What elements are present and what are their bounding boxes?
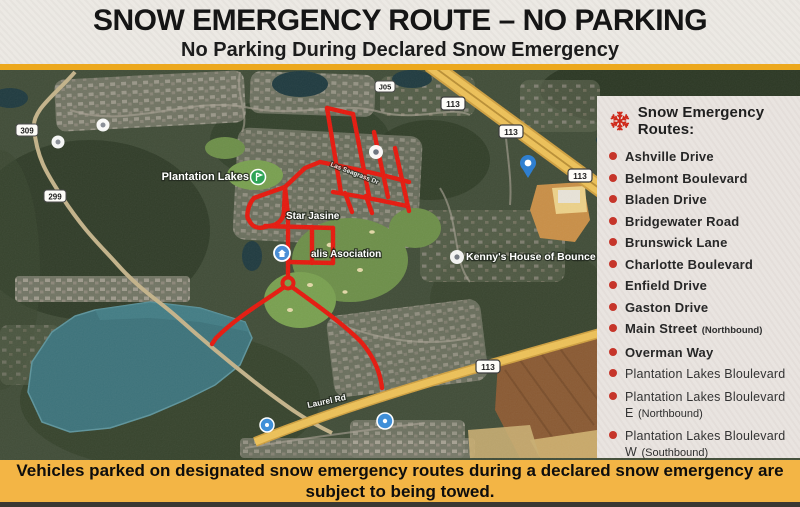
route-shield-j05: J05 — [375, 81, 395, 92]
route-name: Charlotte Boulevard — [625, 257, 753, 272]
route-list-item: Bridgewater Road — [609, 214, 794, 229]
bullet-icon — [609, 174, 617, 182]
snowflake-icon — [609, 108, 631, 134]
bullet-icon — [609, 392, 617, 400]
bullet-icon — [609, 195, 617, 203]
page-subtitle: No Parking During Declared Snow Emergenc… — [0, 39, 800, 62]
bottom-border — [0, 502, 800, 507]
svg-text:J05: J05 — [379, 83, 392, 92]
tow-warning-text: Vehicles parked on designated snow emerg… — [7, 460, 793, 502]
route-shield-309: 309 — [16, 124, 38, 136]
route-name: Belmont Boulevard — [625, 171, 748, 186]
route-name: Main Street (Northbound) — [625, 321, 762, 338]
route-list-item: Main Street (Northbound) — [609, 321, 794, 338]
route-list-item: Bladen Drive — [609, 192, 794, 207]
route-shield-299: 299 — [44, 190, 66, 202]
svg-text:113: 113 — [446, 99, 460, 109]
golf-flag-icon — [251, 170, 266, 185]
svg-text:309: 309 — [20, 127, 34, 136]
route-name: Bridgewater Road — [625, 214, 739, 229]
route-name: Plantation Lakes Bloulevard W (Southboun… — [625, 428, 794, 461]
route-name: Plantation Lakes Bloulevard — [625, 366, 785, 382]
route-list-item: Ashville Drive — [609, 149, 794, 164]
svg-text:299: 299 — [48, 193, 62, 202]
bullet-icon — [609, 281, 617, 289]
route-list-item: Plantation Lakes Bloulevard W (Southboun… — [609, 428, 794, 461]
route-list-item: Overman Way — [609, 345, 794, 360]
sidebar-title: Snow Emergency Routes: — [638, 104, 794, 138]
routes-sidebar: Snow Emergency Routes: Ashville Drive Be… — [597, 96, 800, 458]
map-label-plantation-lakes: Plantation Lakes — [162, 171, 249, 183]
route-list-item: Brunswick Lane — [609, 235, 794, 250]
bullet-icon — [609, 324, 617, 332]
route-shield-113-b: 113 — [499, 125, 523, 138]
route-name: Ashville Drive — [625, 149, 714, 164]
routes-list: Ashville Drive Belmont Boulevard Bladen … — [609, 149, 794, 507]
route-name: Bladen Drive — [625, 192, 707, 207]
svg-text:113: 113 — [481, 362, 495, 372]
route-name: Gaston Drive — [625, 300, 708, 315]
bullet-icon — [609, 260, 617, 268]
svg-text:113: 113 — [504, 127, 518, 137]
page-title: SNOW EMERGENCY ROUTE – NO PARKING — [0, 4, 800, 38]
map-label-kennys-house-of-bounce: Kenny's House of Bounce — [466, 251, 596, 263]
map-label-association: alis Asociation — [311, 249, 381, 260]
route-name: Brunswick Lane — [625, 235, 728, 250]
bullet-icon — [609, 217, 617, 225]
route-name: Plantation Lakes Bloulevard E (Northboun… — [625, 389, 794, 422]
header: SNOW EMERGENCY ROUTE – NO PARKING No Par… — [0, 0, 800, 64]
bullet-icon — [609, 238, 617, 246]
route-list-item: Charlotte Boulevard — [609, 257, 794, 272]
route-shield-113-d: 113 — [476, 360, 500, 373]
bullet-icon — [609, 431, 617, 439]
route-name: Overman Way — [625, 345, 713, 360]
bullet-icon — [609, 303, 617, 311]
route-name: Enfield Drive — [625, 278, 707, 293]
snow-emergency-poster: SNOW EMERGENCY ROUTE – NO PARKING No Par… — [0, 0, 800, 507]
route-shield-113-c: 113 — [568, 169, 592, 182]
map-label-star-jasine: Star Jasine — [286, 211, 340, 222]
route-list-item: Enfield Drive — [609, 278, 794, 293]
bullet-icon — [609, 348, 617, 356]
home-marker-icon — [274, 245, 290, 261]
route-list-item: Belmont Boulevard — [609, 171, 794, 186]
kennys-marker-dot — [450, 250, 464, 264]
svg-text:113: 113 — [573, 171, 587, 181]
route-list-item: Plantation Lakes Bloulevard — [609, 366, 794, 382]
bullet-icon — [609, 152, 617, 160]
route-list-item: Plantation Lakes Bloulevard E (Northboun… — [609, 389, 794, 422]
sidebar-title-row: Snow Emergency Routes: — [609, 104, 794, 138]
tow-warning-banner: Vehicles parked on designated snow emerg… — [0, 460, 800, 502]
route-shield-113-a: 113 — [441, 97, 465, 110]
bullet-icon — [609, 369, 617, 377]
route-list-item: Gaston Drive — [609, 300, 794, 315]
